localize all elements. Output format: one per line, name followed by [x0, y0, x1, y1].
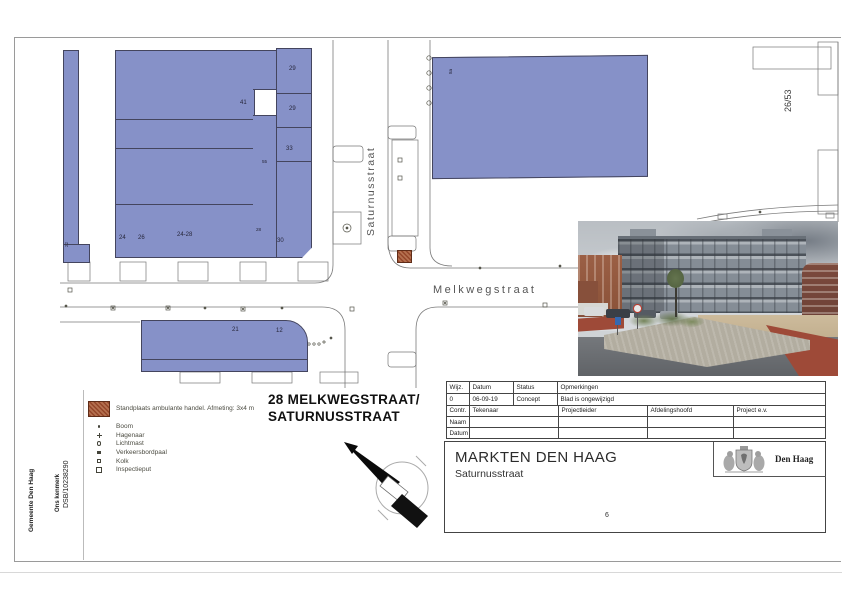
street-name-saturnusstraat: Saturnusstraat	[365, 147, 377, 236]
lichtmast-icon	[88, 441, 110, 446]
north-arrow	[342, 436, 452, 541]
empty-cell	[470, 417, 559, 427]
table-row: Contr. Tekenaar Projectleider Afdelingsh…	[447, 406, 825, 418]
hagenaar-icon	[88, 433, 110, 438]
house-number: 29	[289, 106, 296, 112]
building-block	[253, 115, 277, 258]
logo-cell-divider	[713, 476, 826, 477]
legend-item: Inspectieput	[88, 465, 288, 474]
role-project-ev: Project e.v.	[734, 406, 825, 417]
building-block	[253, 50, 277, 90]
project-subtitle: Saturnusstraat	[455, 468, 523, 480]
logo-cell-divider	[713, 442, 714, 476]
empty-cell	[559, 428, 648, 438]
legend-label: Boom	[116, 423, 133, 430]
standplaats-label: Standplaats ambulante handel. Afmeting: …	[116, 401, 254, 412]
street-photo	[578, 221, 838, 376]
document-title-line1: 28 MELKWEGSTRAAT/	[268, 391, 420, 408]
house-number: 26	[138, 235, 145, 241]
cell-wijz: 0	[447, 394, 470, 405]
house-number: 28	[256, 227, 261, 232]
table-row: Wijz. Datum Status Opmerkingen	[447, 382, 825, 394]
house-number: 12	[276, 328, 283, 334]
legend: Standplaats ambulante handel. Afmeting: …	[88, 401, 288, 474]
legend-item: Lichtmast	[88, 439, 288, 448]
kolk-icon	[88, 459, 110, 463]
house-number: 30	[277, 238, 284, 244]
label-naam: Naam	[447, 417, 470, 427]
plot-reference: 26/53	[783, 89, 793, 112]
photo-parking-sign	[615, 317, 621, 325]
document-title: 28 MELKWEGSTRAAT/ SATURNUSSTRAAT	[268, 391, 420, 425]
boom-icon	[88, 425, 110, 428]
empty-cell	[470, 428, 559, 438]
house-number: 8a	[448, 69, 453, 74]
photo-garage-shadow-face	[618, 239, 664, 313]
page-number: 6	[605, 512, 609, 519]
building-block	[276, 48, 312, 258]
house-number: 33	[286, 146, 293, 152]
cell-datum: 06-09-19	[470, 394, 514, 405]
house-number: 55	[262, 159, 267, 164]
photo-shrubs	[624, 311, 704, 329]
cell-status: Concept	[514, 394, 558, 405]
legend-item: Boom	[88, 422, 288, 431]
standplaats-swatch	[88, 401, 110, 417]
header-opmerkingen: Opmerkingen	[558, 382, 825, 393]
den-haag-wordmark: Den Haag	[775, 454, 813, 464]
photo-round-building	[802, 263, 838, 319]
house-number: 24-28	[177, 232, 192, 238]
den-haag-crest-icon	[721, 445, 767, 474]
revision-table: Wijz. Datum Status Opmerkingen 0 06-09-1…	[446, 381, 826, 439]
role-tekenaar: Tekenaar	[470, 406, 559, 417]
legend-item: Hagenaar	[88, 431, 288, 440]
header-status: Status	[514, 382, 558, 393]
document-title-line2: SATURNUSSTRAAT	[268, 408, 420, 425]
cell-opmerkingen: Blad is ongewijzigd	[558, 394, 825, 405]
role-projectleider: Projectleider	[559, 406, 648, 417]
legend-label: Lichtmast	[116, 440, 144, 447]
legend-item: Kolk	[88, 457, 288, 466]
legend-label: Kolk	[116, 458, 129, 465]
street-name-melkwegstraat: Melkwegstraat	[433, 284, 536, 296]
standplaats-marker	[397, 250, 412, 263]
house-number: 41	[240, 100, 247, 106]
photo-sign-pole	[637, 313, 638, 329]
house-number: 21	[232, 327, 239, 333]
verkeersbordpaal-icon	[88, 451, 110, 455]
house-number: 22	[64, 242, 69, 247]
header-wijz: Wijz.	[447, 382, 470, 393]
header-datum: Datum	[470, 382, 514, 393]
table-row: Naam	[447, 417, 825, 428]
plan-sheet: Gemeente Den Haag Ons kenmerk DSB/102382…	[0, 0, 842, 595]
legend-item: Verkeersbordpaal	[88, 448, 288, 457]
house-number: 24	[119, 235, 126, 241]
building-block	[115, 50, 255, 258]
empty-cell	[734, 428, 825, 438]
legend-label: Hagenaar	[116, 432, 145, 439]
organisation-title: MARKTEN DEN HAAG	[455, 449, 617, 466]
building-block	[432, 55, 648, 179]
house-number: 29	[289, 66, 296, 72]
photo-sign-pole	[617, 325, 618, 335]
role-afdelingshoofd: Afdelingshoofd	[648, 406, 734, 417]
photo-parked-car	[584, 307, 604, 316]
table-row: 0 06-09-19 Concept Blad is ongewijzigd	[447, 394, 825, 406]
legend-label: Inspectieput	[116, 466, 151, 473]
inspectieput-icon	[88, 467, 110, 473]
photo-traffic-sign	[633, 304, 642, 313]
role-contr: Contr.	[447, 406, 470, 417]
empty-cell	[648, 428, 734, 438]
label-datum: Datum	[447, 428, 470, 438]
photo-tree	[667, 269, 684, 288]
table-row: Datum	[447, 428, 825, 438]
legend-label: Verkeersbordpaal	[116, 449, 167, 456]
title-block: MARKTEN DEN HAAG Saturnusstraat Den Haag…	[444, 441, 826, 533]
empty-cell	[734, 417, 825, 427]
building-block	[63, 50, 79, 246]
empty-cell	[559, 417, 648, 427]
empty-cell	[648, 417, 734, 427]
